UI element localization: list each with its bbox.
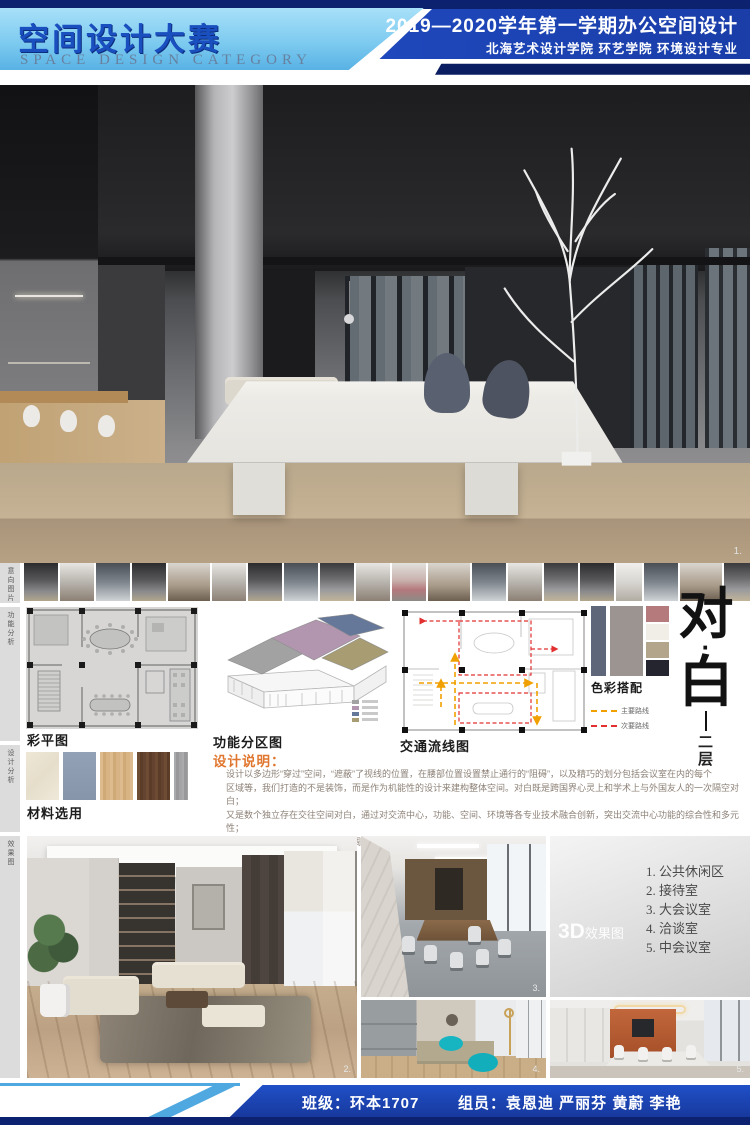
meeting-chair	[662, 1047, 672, 1060]
conference-window	[487, 844, 546, 931]
room-list-item: 1. 公共休闲区	[646, 862, 724, 881]
render-info-panel: 3D效果图 1. 公共休闲区 2. 接待室 3. 大会议室 4. 洽谈室 5. …	[550, 836, 750, 997]
lounge-ottoman	[202, 1005, 265, 1027]
palette-caption: 色彩搭配	[591, 679, 643, 696]
concrete-joint	[361, 1023, 417, 1025]
design-competition-poster: 空间设计大赛 SPACE DESIGN CATEGORY 2019—2020学年…	[0, 0, 750, 1125]
hero-tree-pot	[562, 452, 592, 466]
bean-window	[516, 1000, 546, 1058]
thumbnail	[212, 563, 246, 601]
room-list-item: 5. 中会议室	[646, 938, 724, 957]
thumbnail	[60, 563, 94, 601]
material-swatch-stone	[174, 752, 188, 800]
hero-wood-desk	[0, 391, 128, 403]
title-char-bai: 白	[678, 656, 733, 708]
thumbnail	[356, 563, 390, 601]
sidebar-tab-renders: 效果图	[0, 836, 20, 1078]
zoning-axon-diagram	[212, 612, 392, 728]
sidebar-tab-design: 设计分析	[0, 745, 20, 832]
hero-white-tree	[465, 133, 690, 468]
conference-chair	[468, 926, 481, 942]
conference-chair	[450, 952, 463, 968]
render-number: 3.	[532, 983, 540, 993]
lounge-sofa-back	[152, 962, 244, 989]
color-plan-caption: 彩平图	[27, 730, 69, 749]
hero-linear-light	[15, 295, 83, 297]
reference-thumbnail-strip	[24, 563, 750, 603]
material-swatch-fabric	[26, 752, 59, 800]
material-swatch-bluegray	[63, 752, 96, 800]
thumbnail	[320, 563, 354, 601]
conference-angled-wall	[361, 836, 409, 997]
thumbnail	[428, 563, 470, 601]
footer-lightblue-line	[0, 1083, 240, 1086]
label-3d-rest: 效果图	[585, 926, 624, 941]
meeting-chair	[686, 1045, 696, 1058]
bean-lamp-ring	[504, 1008, 514, 1018]
zoning-caption: 功能分区图	[213, 732, 283, 751]
thumbnail	[168, 563, 210, 601]
concrete-joint	[361, 1048, 417, 1050]
hero-window-corner	[705, 248, 750, 454]
material-swatches	[26, 752, 206, 800]
hero-platform-leg	[233, 463, 286, 516]
hero-left-wall	[0, 85, 98, 400]
render-public-lounge: 2.	[27, 836, 357, 1078]
conference-screen	[435, 868, 463, 910]
render-number: 2.	[343, 1064, 351, 1074]
hero-platform-leg	[465, 463, 518, 516]
thumbnail	[616, 563, 642, 601]
lounge-window	[284, 851, 357, 987]
teal-beanbag	[439, 1036, 463, 1051]
render-conference-room: 3.	[361, 836, 546, 997]
meeting-chair	[614, 1045, 624, 1058]
project-title-vertical: 对 · 白 二 层	[663, 588, 749, 780]
hero-white-chair	[60, 410, 77, 432]
footer-navy-strip	[0, 1117, 750, 1125]
hero-linear-light-2	[8, 362, 91, 364]
lounge-coffee-table	[166, 991, 209, 1008]
description-line: 设计以多边形“穿过”空间，“遮蔽”了视线的位置，在腰部位置设置禁止通行的“阻碍”…	[226, 768, 748, 782]
thumbnail	[508, 563, 542, 601]
effect-drawings-label: 3D效果图	[558, 920, 624, 944]
material-swatch-light-wood	[100, 752, 133, 800]
render-number: 4.	[532, 1064, 540, 1074]
hero-pendant-lamp	[344, 314, 354, 324]
circulation-caption: 交通流线图	[400, 736, 470, 755]
hero-pendant-cord	[349, 281, 350, 315]
thumbnail	[392, 563, 426, 601]
conference-chair	[476, 949, 489, 965]
meeting-wall-panels	[550, 1008, 610, 1063]
hero-photo-number: 1.	[734, 546, 742, 557]
materials-caption: 材料选用	[27, 803, 83, 822]
meeting-floor	[550, 1066, 750, 1078]
main-route-dash-icon	[591, 710, 617, 712]
circulation-diagram	[399, 607, 589, 735]
thumbnail	[580, 563, 614, 601]
floor-label-1: 二	[698, 734, 714, 751]
color-floor-plan	[26, 607, 198, 729]
thumbnail	[96, 563, 130, 601]
lounge-artwork	[192, 884, 225, 930]
sidebar-tab-function: 功能分析	[0, 607, 20, 741]
hero-white-chair	[98, 415, 115, 437]
lounge-wood-wardrobe	[242, 855, 285, 983]
thumbnail	[544, 563, 578, 601]
title-divider-line	[705, 711, 707, 731]
design-description-title: 设计说明：	[213, 750, 286, 770]
secondary-route-label: 次要路线	[621, 721, 649, 731]
lounge-planter-pot	[40, 984, 70, 1018]
hero-render-image: 1.	[0, 85, 750, 563]
header-banner: 空间设计大赛 SPACE DESIGN CATEGORY 2019—2020学年…	[0, 0, 750, 85]
meeting-window	[704, 1000, 750, 1061]
conference-chair	[498, 939, 511, 955]
conference-chair	[424, 945, 437, 961]
palette-swatch-slate	[591, 606, 606, 676]
description-line: 又是数个独立存在交往空间对白，通过对交流中心，功能、空间、环境等各专业技术融合创…	[226, 809, 748, 836]
members-label: 组员：袁恩迪 严丽芬 黄蔚 李艳	[458, 1092, 682, 1113]
room-list-item: 3. 大会议室	[646, 900, 724, 919]
thumbnail	[472, 563, 506, 601]
label-3d: 3D	[558, 920, 585, 943]
material-swatch-walnut	[137, 752, 170, 800]
bean-wall-decor	[446, 1014, 458, 1026]
meeting-tv-screen	[632, 1019, 654, 1038]
render-beanbag-lounge: 4.	[361, 1000, 546, 1078]
room-list-item: 2. 接待室	[646, 881, 724, 900]
class-label: 班级：环本1707	[302, 1092, 419, 1113]
main-route-label: 主要路线	[621, 706, 649, 716]
floor-label-2: 层	[698, 751, 714, 768]
footer-banner: 班级：环本1707 组员：袁恩迪 严丽芬 黄蔚 李艳	[0, 1078, 750, 1125]
conference-ceiling-light	[417, 844, 480, 848]
conference-chair	[402, 936, 415, 952]
course-title: 2019—2020学年第一学期办公空间设计	[385, 11, 738, 38]
conference-table	[417, 920, 498, 941]
lounge-plant	[27, 904, 83, 991]
hero-wood-deck	[0, 463, 750, 563]
description-line: 区域等，我们打造的不是装饰，而是作为机能性的设计来建构整体空间。对白既是跨国界心…	[226, 782, 748, 809]
meeting-chair	[638, 1047, 648, 1060]
render-number: 5.	[736, 1064, 744, 1074]
thumbnail	[248, 563, 282, 601]
room-index-list: 1. 公共休闲区 2. 接待室 3. 大会议室 4. 洽谈室 5. 中会议室	[646, 862, 724, 957]
room-list-item: 4. 洽谈室	[646, 919, 724, 938]
competition-subtitle-en: SPACE DESIGN CATEGORY	[20, 52, 312, 69]
hero-white-chair	[23, 405, 40, 427]
palette-swatch-gray	[610, 606, 643, 676]
secondary-route-dash-icon	[591, 725, 617, 727]
school-line: 北海艺术设计学院 环艺学院 环境设计专业	[486, 38, 738, 57]
render-meeting-room: 5.	[550, 1000, 750, 1078]
thumbnail	[284, 563, 318, 601]
thumbnail	[132, 563, 166, 601]
thumbnail	[24, 563, 58, 601]
sidebar-tab-intent: 意向图片	[0, 563, 20, 603]
